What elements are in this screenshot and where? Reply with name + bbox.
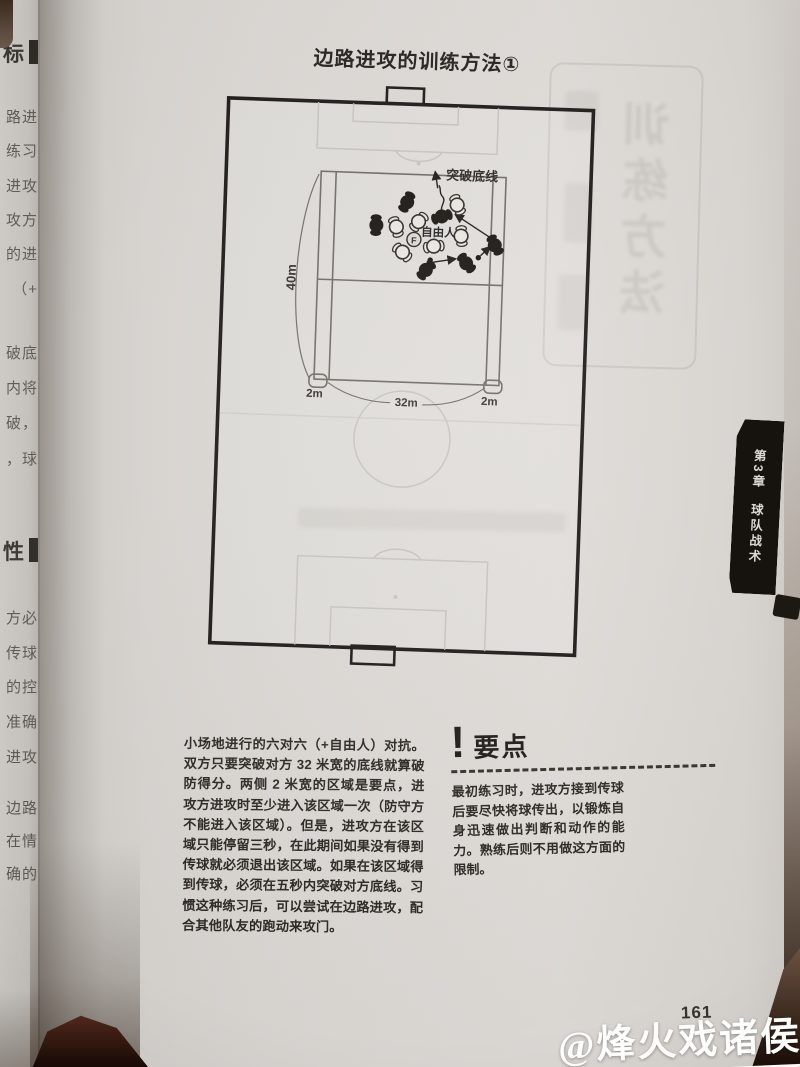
edge-fragment: 的进 <box>6 243 38 264</box>
watermark: @烽火戏诸侯 <box>555 1005 800 1067</box>
label-channel-right: 2m <box>481 396 498 409</box>
section-label: 球队战术 <box>744 503 766 566</box>
exclamation-icon: ! <box>450 725 466 761</box>
edge-fragment: 练习 <box>6 140 38 161</box>
cover-corner-bottom-left <box>28 1006 148 1067</box>
edge-fragment: 在情 <box>6 830 38 851</box>
pitch-frame <box>209 82 594 671</box>
edge-fragment: 准确 <box>6 711 38 732</box>
label-free-player: 自由人 <box>421 225 456 240</box>
edge-fragment: 方必 <box>6 607 38 628</box>
edge-fragment: 进攻 <box>6 746 38 767</box>
label-breakthrough: 突破底线 <box>446 168 499 185</box>
body-paragraph: 小场地进行的六对六（+自由人）对抗。双方只要突破对方 32 米宽的底线就算破防得… <box>182 734 425 939</box>
edge-fragment: 确的 <box>6 863 38 884</box>
key-points-header: ! 要点 <box>450 719 719 766</box>
key-points-section: ! 要点 最初练习时，进攻方接到传球后要尽快将球传出，以锻炼自身迅速做出判断和动… <box>450 719 722 880</box>
training-diagram: 40m 2m 32m 2m 突破底线 <box>192 76 604 683</box>
key-points-text: 最初练习时，进攻方接到传球后要尽快将球传出，以锻炼自身迅速做出判断和动作的能力。… <box>452 778 626 880</box>
pitch-interior <box>212 100 592 653</box>
heading-bar-icon <box>29 40 38 64</box>
chapter-tab-text: 第3章 球队战术 <box>744 448 769 566</box>
edge-fragment: 性 <box>3 536 38 566</box>
bleed-through-text: 训练方法 <box>611 100 683 326</box>
edge-fragment: 破底 <box>6 342 38 363</box>
page-edge-right <box>784 0 800 1067</box>
edge-fragment: 进攻 <box>6 175 38 196</box>
dashed-divider <box>451 764 715 773</box>
key-points-title: 要点 <box>473 726 530 764</box>
edge-fragment: （+ <box>12 278 38 299</box>
book-photo: 训练方法 边路进攻的训练方法① <box>0 0 800 1067</box>
edge-fragment: 内将 <box>6 377 38 398</box>
label-channel-center: 32m <box>394 397 417 410</box>
label-grid-length: 40m <box>283 264 299 291</box>
edge-fragment: 边路 <box>6 797 38 818</box>
edge-fragment: ，球 <box>6 448 38 469</box>
left-bottom-shade <box>0 990 40 1067</box>
label-channel-left: 2m <box>306 388 323 401</box>
free-player-mark: F <box>411 235 417 245</box>
chapter-tab: 第3章 球队战术 <box>728 419 784 595</box>
left-page-edge: 标 路进 练习 进攻 攻方 的进 （+ 破底 内将 破， ，球 性 方必 传球 … <box>0 0 40 1067</box>
next-tab-peek <box>772 594 800 620</box>
gutter-shadow <box>38 0 148 1067</box>
edge-fragment: 攻方 <box>6 209 38 230</box>
edge-fragment: 破， <box>6 412 38 433</box>
edge-fragment: 传球 <box>6 642 38 663</box>
edge-fragment: 路进 <box>6 106 38 127</box>
cover-corner-top-left <box>0 0 13 48</box>
page-title: 边路进攻的训练方法① <box>303 41 532 77</box>
chapter-label: 第3章 <box>748 448 769 490</box>
heading-bar-icon <box>29 538 38 562</box>
edge-fragment: 的控 <box>6 676 38 697</box>
